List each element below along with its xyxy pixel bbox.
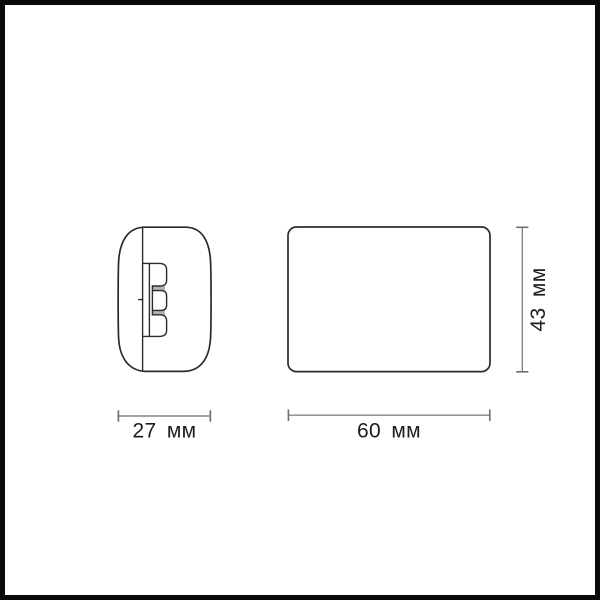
- dimension-front-width: 60 мм: [288, 409, 489, 442]
- front-view: [288, 227, 490, 372]
- front-width-label: 60 мм: [357, 420, 421, 443]
- side-view-outline: [118, 227, 211, 371]
- dimension-side-width: 27 мм: [118, 410, 210, 442]
- dimension-front-height: 43 мм: [516, 227, 550, 371]
- side-view: [118, 227, 211, 371]
- clip-tooth-bottom: [143, 315, 167, 337]
- drawing-frame: 27 мм 60 мм 43 мм: [0, 0, 600, 600]
- cable-clip: [143, 263, 167, 336]
- side-width-label: 27 мм: [132, 420, 196, 443]
- front-height-label: 43 мм: [527, 267, 550, 331]
- technical-drawing: 27 мм 60 мм 43 мм: [5, 5, 600, 600]
- clip-tooth-middle: [152, 291, 166, 311]
- front-view-outline: [288, 227, 490, 372]
- clip-tooth-top: [143, 263, 167, 286]
